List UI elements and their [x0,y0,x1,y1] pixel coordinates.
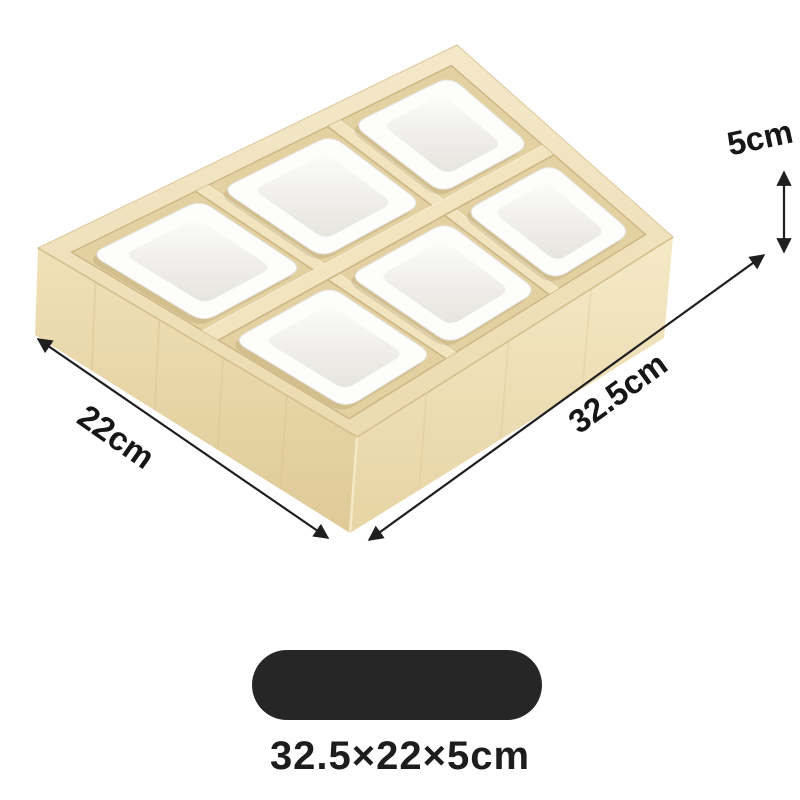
size-badge-pill [252,650,542,720]
product-photo: 5cm 32.5cm 22cm 32.5×22×5cm [0,0,800,800]
size-caption: 32.5×22×5cm [0,734,800,779]
